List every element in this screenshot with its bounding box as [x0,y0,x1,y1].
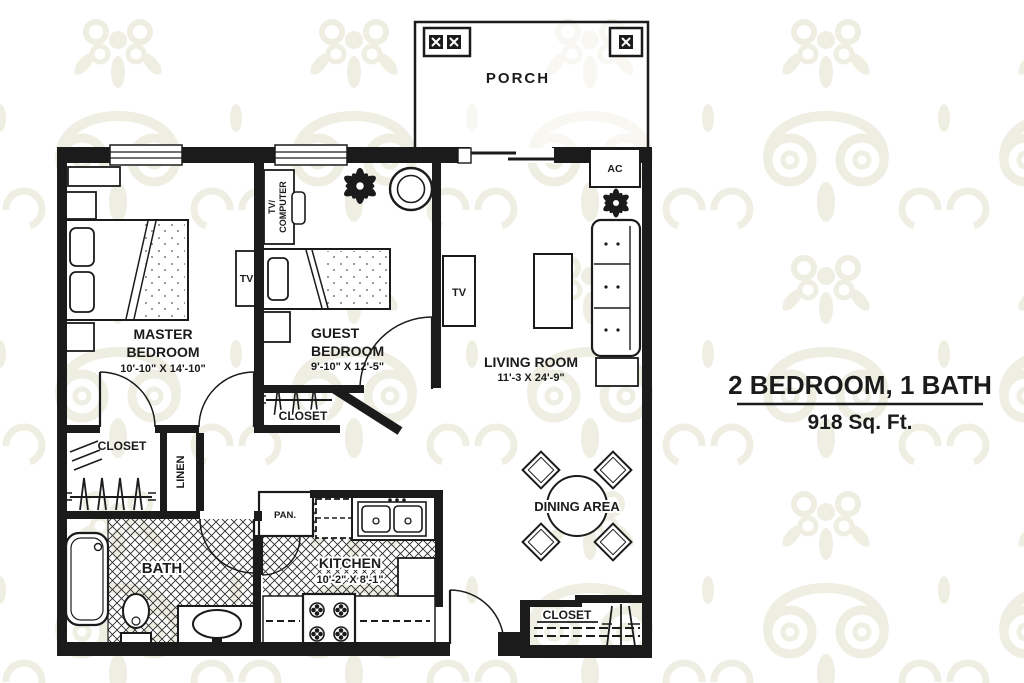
bathtub [66,533,108,625]
desk-label-computer: COMPUTER [278,181,288,233]
master-closet-label: CLOSET [98,439,147,453]
stove [303,594,355,646]
kitchen-sink [352,496,435,540]
master-bedroom-label2: BEDROOM [126,344,199,360]
guest-bedroom-dims: 9'-10" X 12'-5" [311,361,384,373]
master-tv-label: TV [240,273,253,285]
master-window [110,145,182,165]
pillow [70,272,94,312]
master-bedroom-label: MASTER [133,326,192,342]
guest-window [275,145,347,165]
round-chair [390,168,432,210]
sofa [592,220,640,356]
end-table [596,358,638,386]
living-room-dims: 11'-3 X 24'-9" [497,372,564,384]
kitchen-label: KITCHEN [319,555,381,571]
living-room-label: LIVING ROOM [484,354,578,370]
plan-title: 2 BEDROOM, 1 BATH [728,370,992,400]
floor-plan: PORCH TV TV/ COMP [0,0,1024,683]
coffee-table [534,254,572,328]
ac-unit: AC [590,149,640,187]
porch: PORCH [415,22,648,150]
bath-label: BATH [142,560,183,577]
guest-closet-label: CLOSET [279,409,328,423]
guest-bedroom-label: GUEST [311,325,360,341]
dining-area-label: DINING AREA [534,499,620,514]
desk-label-tv: TV/ [267,200,277,215]
kitchen-cabinet [398,558,435,596]
ac-label: AC [607,163,623,175]
porch-label: PORCH [486,70,550,87]
living-tv: TV [443,256,475,326]
porch-post-icon [429,35,443,49]
nightstand [64,323,94,351]
master-tv: TV [236,251,257,306]
floor-plan-page: PORCH TV TV/ COMP [0,0,1024,683]
pillow [70,228,94,266]
refrigerator [316,499,352,538]
master-bedroom-dims: 10'-10" X 14'-10" [120,363,205,375]
master-bed [64,220,188,320]
guest-bed [262,249,390,309]
nightstand [66,192,96,219]
porch-post-icon [619,35,633,49]
bath-vanity [178,606,256,646]
dresser [68,167,120,186]
porch-post-icon [447,35,461,49]
entry-closet-label-group: CLOSET [537,608,598,622]
windows [110,145,554,165]
sink [193,610,241,638]
living-tv-label: TV [452,287,467,299]
toilet [121,594,151,645]
guest-bedroom-label2: BEDROOM [311,343,384,359]
pantry-label: PAN. [274,510,296,521]
entry-closet-label: CLOSET [543,608,592,622]
desk-chair [292,192,305,224]
linen-label: LINEN [175,455,187,488]
sliding-door [458,148,554,163]
nightstand [262,312,290,342]
kitchen-dims: 10'-2" X 8'-1" [316,574,383,586]
plan-area: 918 Sq. Ft. [807,411,912,434]
pillow [268,258,288,300]
